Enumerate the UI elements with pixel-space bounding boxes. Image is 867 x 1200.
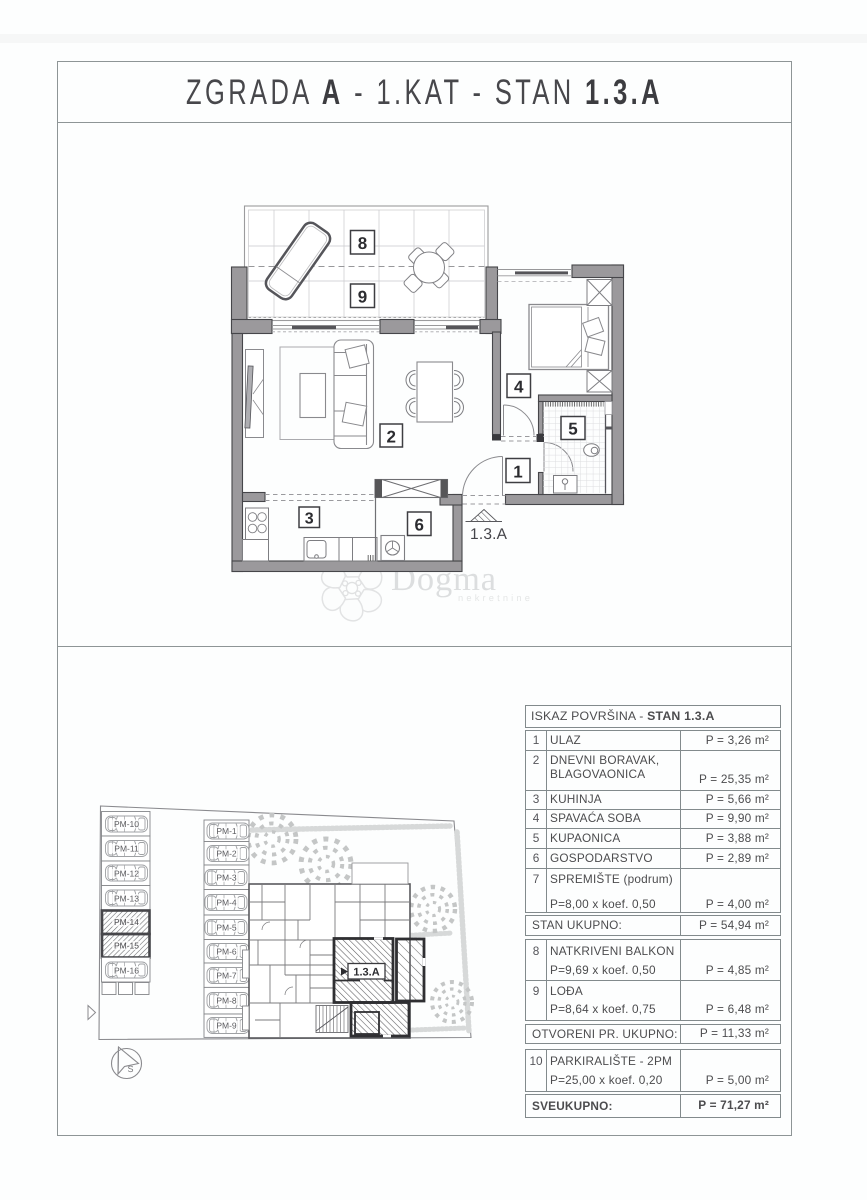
svg-text:PM-5: PM-5 (216, 923, 237, 933)
svg-text:4: 4 (514, 378, 524, 397)
svg-text:PM-14: PM-14 (114, 917, 139, 927)
svg-text:PM-10: PM-10 (114, 819, 139, 829)
svg-text:PM-1: PM-1 (216, 826, 237, 836)
svg-text:PM-16: PM-16 (114, 966, 139, 976)
svg-text:PM-7: PM-7 (216, 971, 237, 981)
svg-text:8: 8 (358, 234, 367, 253)
svg-text:6: 6 (414, 516, 423, 535)
svg-text:5: 5 (568, 420, 577, 439)
svg-text:1.3.A: 1.3.A (470, 526, 508, 543)
svg-text:PM-11: PM-11 (114, 844, 139, 854)
svg-text:PM-2: PM-2 (216, 849, 237, 859)
svg-text:PM-8: PM-8 (216, 996, 237, 1006)
svg-text:PM-6: PM-6 (216, 947, 237, 957)
svg-text:PM-3: PM-3 (216, 873, 237, 883)
svg-text:1.3.A: 1.3.A (353, 967, 379, 979)
svg-text:1: 1 (513, 463, 522, 482)
svg-text:9: 9 (358, 288, 367, 307)
svg-text:2: 2 (386, 428, 395, 447)
svg-text:nekretnine: nekretnine (458, 594, 533, 604)
svg-text:PM-9: PM-9 (216, 1021, 237, 1031)
svg-text:PM-15: PM-15 (114, 941, 139, 951)
svg-text:3: 3 (305, 511, 314, 528)
svg-text:PM-13: PM-13 (114, 894, 139, 904)
svg-text:S: S (128, 1064, 134, 1074)
svg-text:PM-4: PM-4 (216, 898, 237, 908)
svg-text:PM-12: PM-12 (114, 869, 139, 879)
